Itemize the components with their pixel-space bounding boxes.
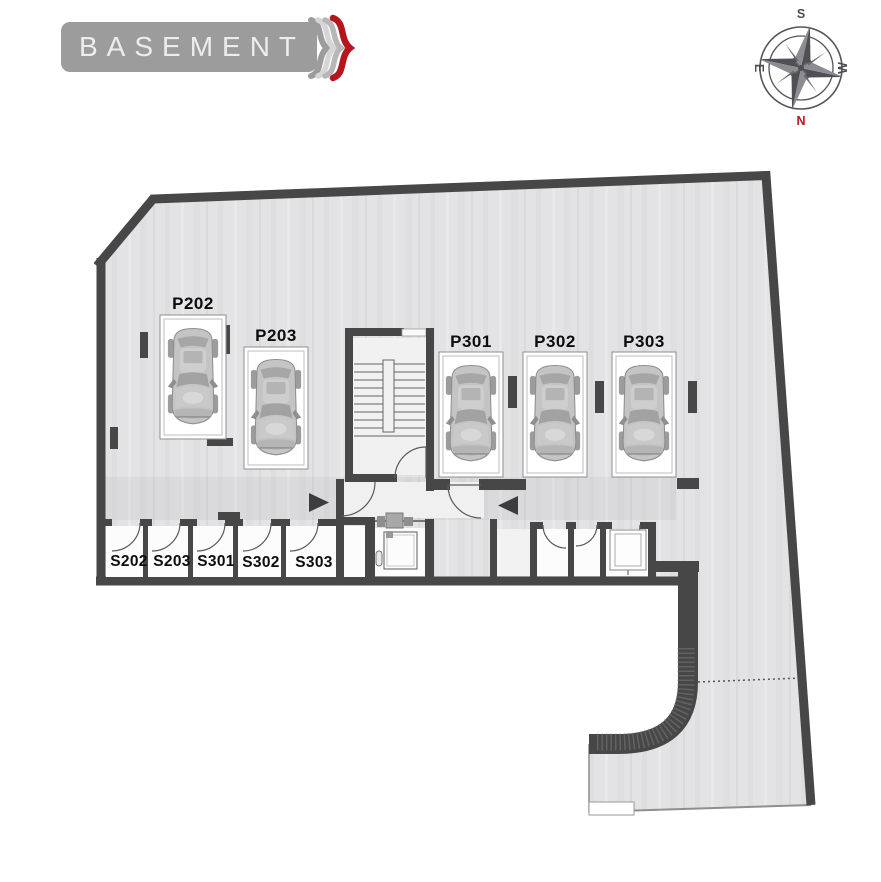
floor-plan: P202 P203 P301 P302 P303 S202 S203 S301 … xyxy=(0,0,881,882)
storage-room-label: S203 xyxy=(153,553,190,570)
storage-room-label: S202 xyxy=(110,553,147,570)
car-icon xyxy=(251,359,301,454)
basement-floor-plan-page: BASEMENT xyxy=(0,0,881,882)
car-icon xyxy=(530,365,580,460)
parking-spot-label: P203 xyxy=(255,326,297,345)
parking-spot xyxy=(523,352,587,477)
car-icon xyxy=(446,365,496,460)
ramp-gate xyxy=(589,802,634,815)
storage-room-label: S302 xyxy=(242,554,279,571)
parking-spot xyxy=(439,352,503,477)
storage-room-label: S301 xyxy=(197,553,234,570)
stair-divider xyxy=(383,360,394,432)
parking-spot xyxy=(612,352,676,477)
parking-spot xyxy=(244,347,308,469)
car-icon xyxy=(619,365,669,460)
parking-spot-label: P301 xyxy=(450,332,492,351)
storage-room-label: S303 xyxy=(295,554,332,571)
car-icon xyxy=(168,328,218,423)
parking-spot-label: P302 xyxy=(534,332,576,351)
elevator-box xyxy=(610,530,646,575)
stairwell-window xyxy=(402,329,426,336)
parking-spot xyxy=(160,315,226,439)
parking-spot-label: P202 xyxy=(172,294,214,313)
parking-spot-label: P303 xyxy=(623,332,665,351)
